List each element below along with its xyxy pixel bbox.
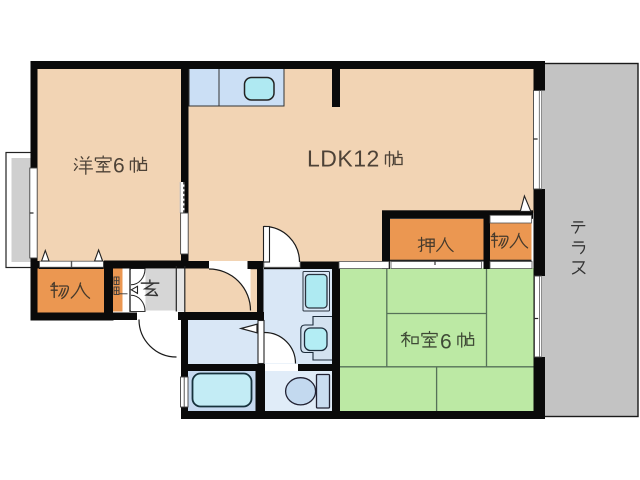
svg-text:LDK12: LDK12 <box>307 146 380 172</box>
svg-text:6: 6 <box>113 155 125 178</box>
svg-text:6: 6 <box>440 331 452 354</box>
